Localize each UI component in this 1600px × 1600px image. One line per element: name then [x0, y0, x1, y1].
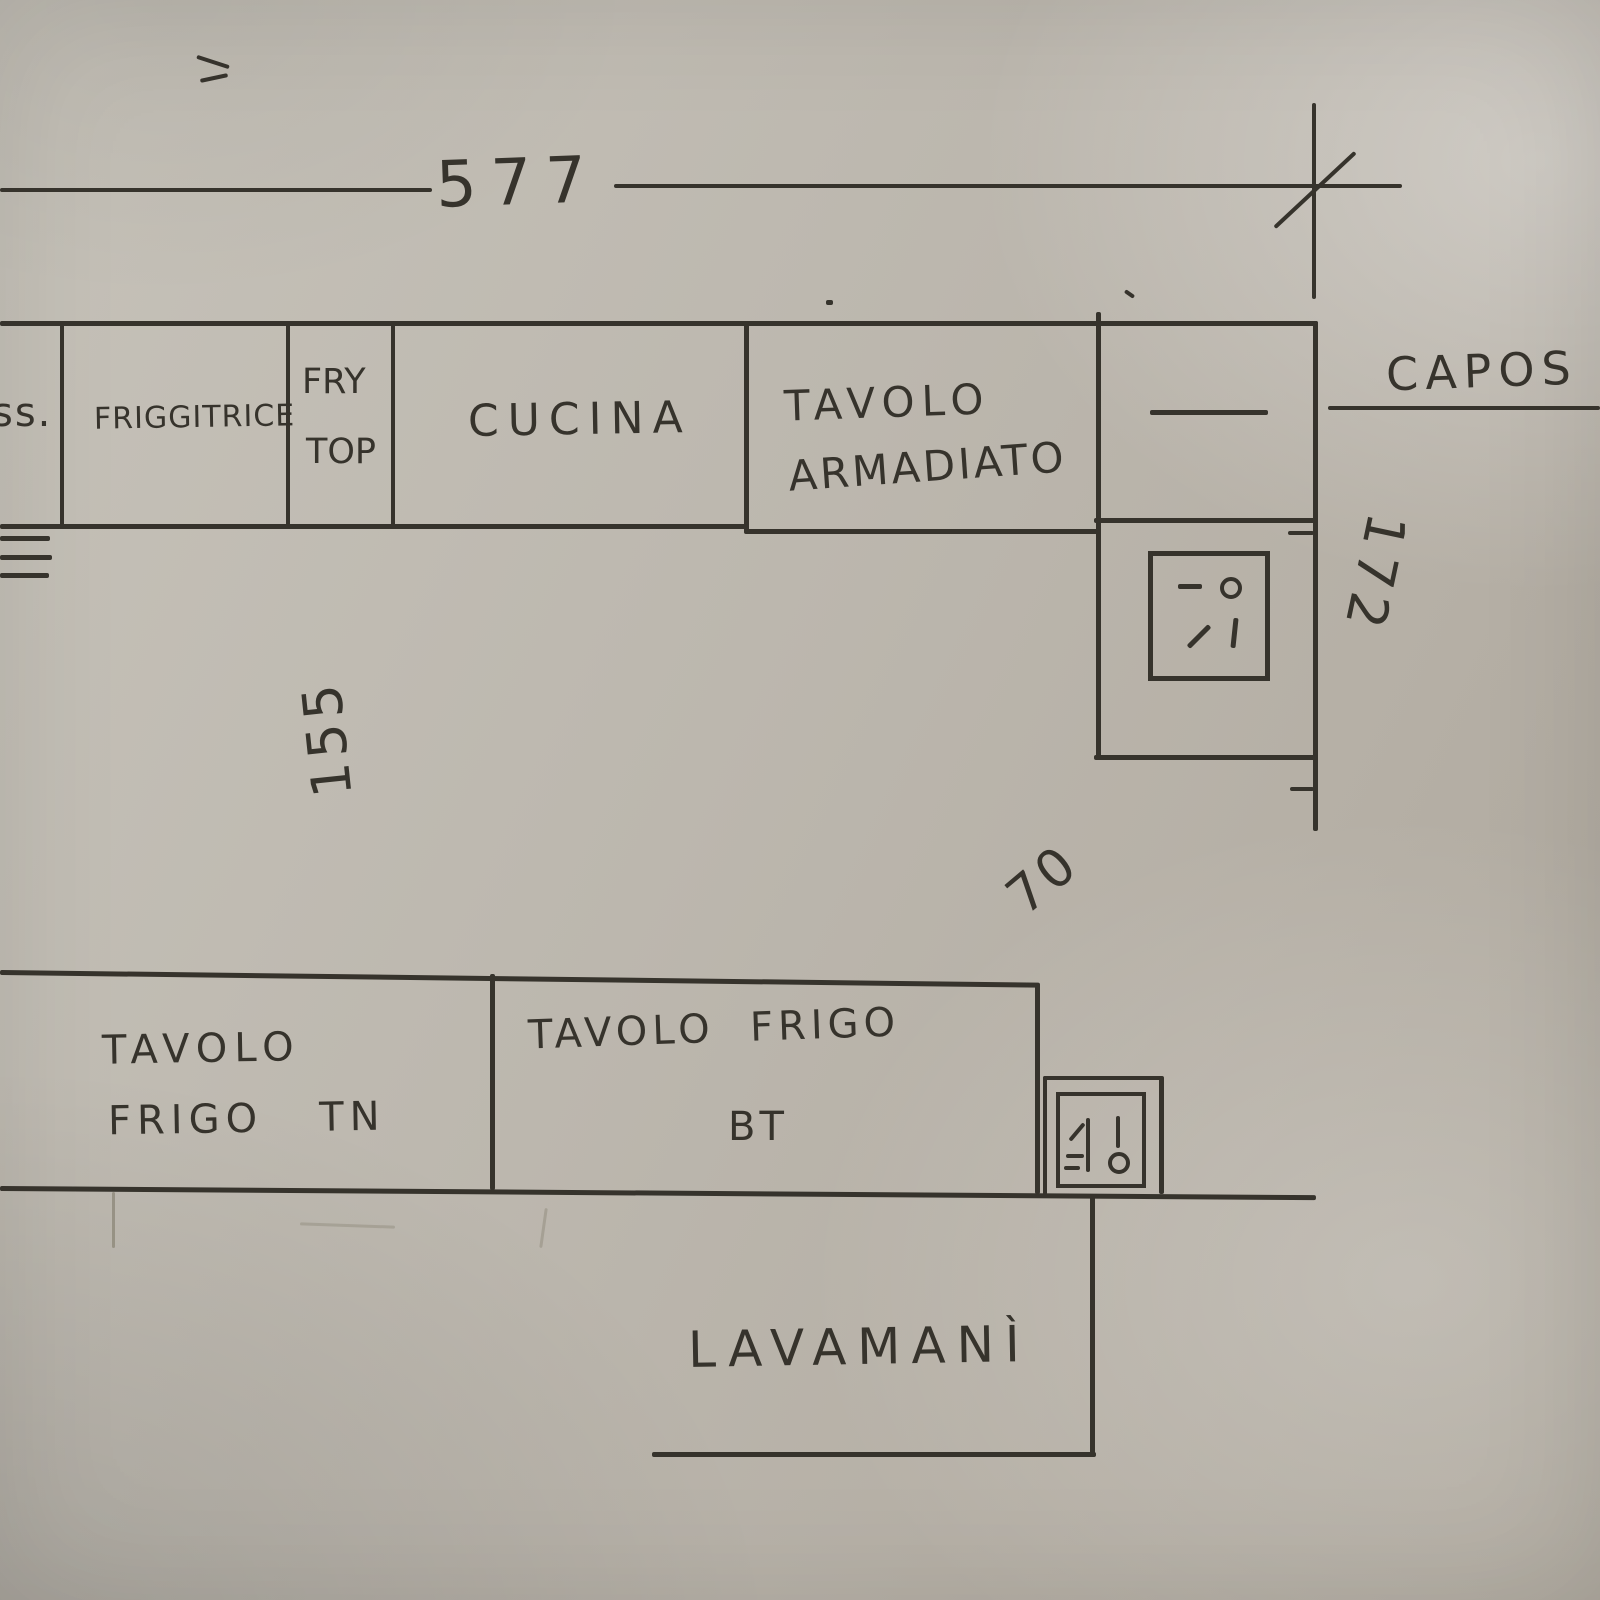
sink2-top-edge [1043, 1076, 1163, 1080]
bottom-baseline [0, 1186, 1316, 1200]
bottom-row-top-edge [0, 970, 1040, 988]
pencil-tick [112, 1192, 115, 1248]
sink2-detail-vline [1086, 1118, 1090, 1172]
top-row-top-edge [0, 321, 1318, 326]
dim-tick [1288, 531, 1314, 535]
sink-detail-dash [1178, 584, 1202, 589]
right-bay-bottom-edge [1094, 755, 1316, 760]
pencil-tick [539, 1208, 548, 1248]
sink2-right-edge [1159, 1076, 1164, 1194]
wall-hatch-line [0, 536, 50, 541]
dim-height-value: 172 [1328, 489, 1423, 659]
cell-label-cucina: CUCINA [468, 392, 692, 447]
sink2-drain-icon [1108, 1152, 1130, 1174]
stray-dot [826, 300, 833, 305]
cell-label-frytop-line1: FRY [302, 362, 366, 402]
kitchen-floor-plan-sketch: 577 ss. FRIGGITRICE FRY TOP CUCINA TAVOL… [0, 0, 1600, 1600]
lavamani-label: LAVAMANÌ [688, 1315, 1032, 1379]
cell-label-tavolo-frigo-tn-line1: TAVOLO [102, 1024, 301, 1073]
dim-line-left-segment [0, 188, 432, 192]
pencil-smudge [300, 1222, 395, 1228]
top-row-divider [391, 321, 395, 528]
cell-label-tavolo-armadiato-line2: ARMADIATO [787, 432, 1069, 500]
cell-label-partial: ss. [0, 390, 52, 436]
top-row-bottom-edge-a [0, 524, 748, 529]
dim-width-value: 577 [435, 143, 602, 223]
cell-label-friggitrice: FRIGGITRICE [94, 398, 296, 437]
bottom-row-right-edge [1035, 983, 1040, 1194]
sink2-detail-vline [1116, 1116, 1120, 1148]
sink-drain-icon [1220, 577, 1242, 599]
stray-dot [1124, 289, 1135, 299]
cell-label-tavolo-frigo-bt-line1: TAVOLO FRIGO [527, 1000, 901, 1059]
dim-line-right-segment [614, 184, 1402, 188]
stray-mark [200, 73, 228, 83]
sink-icon [1148, 551, 1270, 681]
right-bay-door-dash [1150, 410, 1268, 415]
dim-depth-value: 155 [287, 651, 367, 827]
wall-hatch-line [0, 573, 49, 578]
sink2-detail-dash [1064, 1166, 1080, 1170]
bottom-row-divider [490, 974, 495, 1190]
cell-label-tavolo-frigo-bt-line2: BT [728, 1104, 788, 1150]
sink2-detail-dash [1066, 1154, 1084, 1158]
right-bay-left-edge [1096, 312, 1101, 760]
lavamani-leader-line [1090, 1195, 1095, 1457]
cell-label-frytop-line2: TOP [306, 432, 376, 472]
capos-underline [1328, 406, 1600, 410]
wall-hatch-line [0, 555, 52, 560]
dim-gap-value: 70 [978, 818, 1108, 941]
sink2-left-edge [1043, 1076, 1047, 1195]
lavamani-underline [652, 1452, 1096, 1457]
annotation-capos: CAPOS [1385, 341, 1579, 402]
right-bay-divider [1094, 518, 1316, 523]
dim-terminator-line [1312, 103, 1316, 299]
top-row-divider [60, 323, 64, 528]
cell-label-tavolo-frigo-tn-line2: FRIGO TN [108, 1094, 386, 1145]
top-row-bottom-edge-b [744, 529, 1100, 534]
top-row-divider [744, 321, 749, 533]
dim-tick [1290, 787, 1314, 791]
cell-label-tavolo-armadiato-line1: TAVOLO [783, 374, 991, 430]
stray-mark [196, 55, 230, 69]
